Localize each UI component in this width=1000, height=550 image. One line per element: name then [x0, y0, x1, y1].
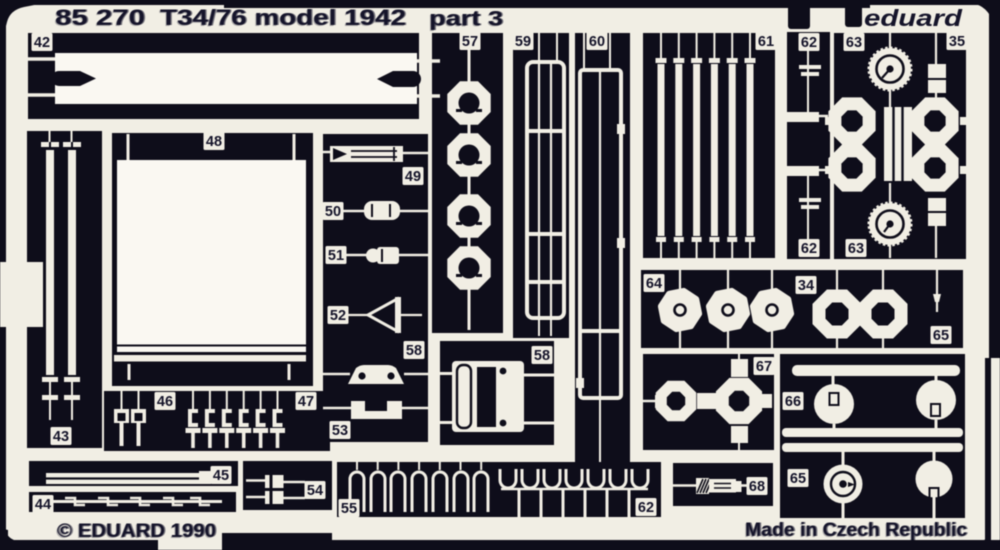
svg-text:34: 34 [798, 278, 814, 294]
svg-text:65: 65 [790, 471, 806, 487]
svg-text:part 3: part 3 [428, 8, 502, 31]
svg-text:35: 35 [949, 34, 965, 50]
svg-text:65: 65 [933, 328, 949, 344]
svg-text:63: 63 [846, 35, 862, 51]
svg-text:62: 62 [801, 35, 817, 51]
svg-text:62: 62 [801, 241, 817, 257]
svg-text:50: 50 [325, 204, 341, 220]
svg-text:46: 46 [157, 394, 173, 410]
svg-text:T34/76 model 1942: T34/76 model 1942 [159, 6, 405, 31]
svg-text:47: 47 [298, 394, 314, 410]
svg-text:42: 42 [34, 35, 50, 51]
svg-text:63: 63 [848, 241, 864, 257]
svg-text:67: 67 [756, 359, 772, 375]
svg-text:52: 52 [330, 308, 346, 324]
svg-text:43: 43 [53, 429, 69, 445]
svg-text:54: 54 [307, 483, 323, 499]
svg-text:53: 53 [332, 423, 348, 439]
svg-text:61: 61 [758, 34, 774, 50]
svg-text:58: 58 [406, 343, 422, 359]
svg-text:45: 45 [213, 468, 229, 484]
svg-text:64: 64 [646, 276, 662, 292]
svg-text:62: 62 [638, 500, 654, 516]
svg-text:68: 68 [749, 479, 765, 495]
svg-text:55: 55 [341, 501, 357, 517]
svg-text:57: 57 [462, 34, 478, 50]
svg-text:49: 49 [405, 169, 421, 185]
svg-text:© EDUARD 1990: © EDUARD 1990 [56, 521, 215, 543]
svg-text:51: 51 [328, 248, 344, 264]
svg-text:48: 48 [206, 134, 222, 150]
svg-text:eduard: eduard [864, 5, 963, 31]
svg-text:66: 66 [785, 394, 801, 410]
svg-text:60: 60 [589, 34, 605, 50]
svg-text:85 270: 85 270 [54, 6, 144, 31]
svg-text:58: 58 [534, 348, 550, 364]
svg-text:Made in Czech Republic: Made in Czech Republic [744, 520, 966, 542]
svg-text:44: 44 [35, 497, 51, 513]
svg-text:59: 59 [515, 34, 531, 50]
